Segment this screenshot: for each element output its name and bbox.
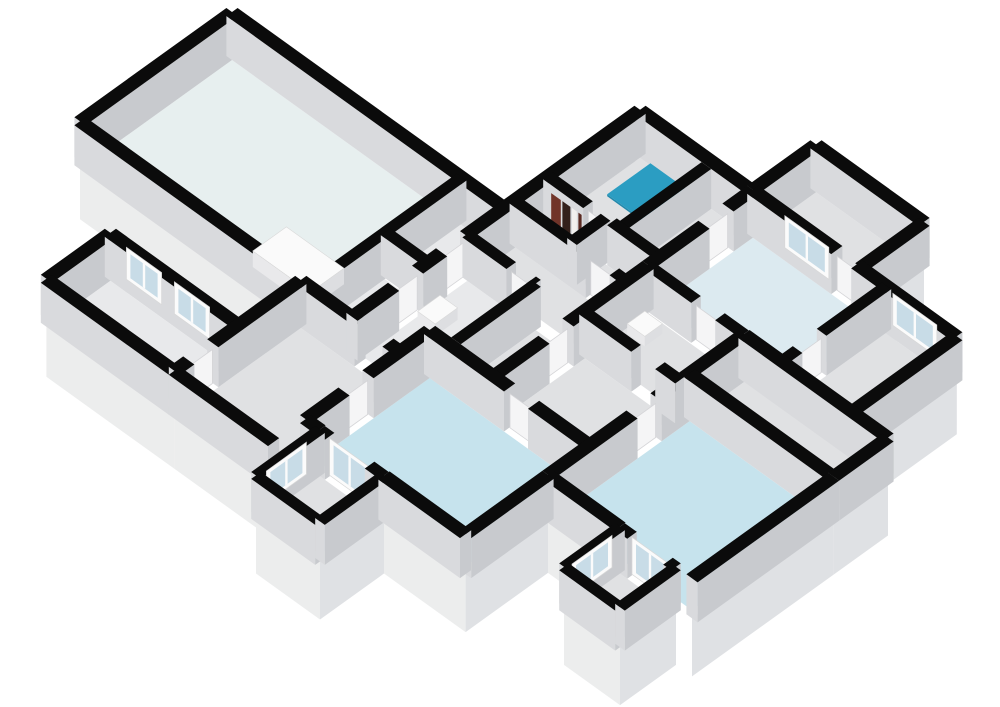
wall-face (686, 574, 697, 622)
annex-window-2-mullion (191, 298, 193, 324)
right-wing-window-1-mullion (806, 235, 808, 261)
balcony-se-window-mullion (591, 553, 593, 579)
wall-face (631, 345, 641, 392)
annex-window-1-mullion (143, 263, 145, 289)
wall-face (615, 604, 625, 651)
balcony-sw-french-door-mullion (348, 456, 350, 487)
wall-face (460, 530, 471, 578)
floorplan-3d-canvas (0, 0, 1000, 707)
floorplan-3d-view (0, 0, 1000, 707)
right-wing-window-2-mullion (914, 312, 916, 338)
balcony-sw-window-mullion (285, 460, 287, 486)
wall-face (567, 238, 577, 285)
wall-face (315, 518, 325, 565)
wall-face (346, 313, 357, 361)
wall-face (675, 377, 685, 424)
